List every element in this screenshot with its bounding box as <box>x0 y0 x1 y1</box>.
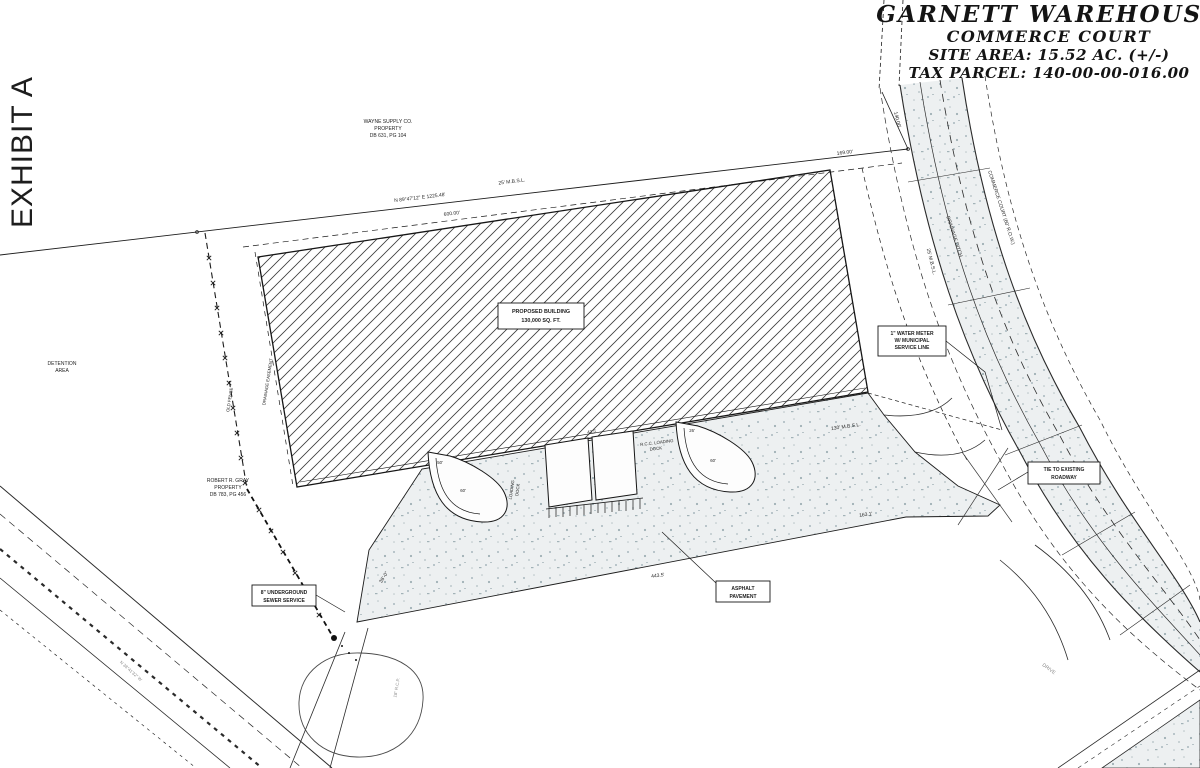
detention-area-label2: AREA <box>55 368 69 374</box>
easement-label: DRAINAGE EASEMENT <box>261 358 273 406</box>
radius-26: 26' <box>689 428 695 433</box>
project-subtitle: COMMERCE COURT <box>866 28 1200 47</box>
tie-existing-line1: TIE TO EXISTING <box>1044 467 1085 473</box>
site-plan-drawing: PROPOSED BUILDING 130,000 SQ. FT. 1" WAT… <box>0 0 1200 768</box>
project-title: GARNETT WAREHOUSE <box>866 1 1200 28</box>
site-area-text: SITE AREA: 15.52 AC. (+/-) <box>866 47 1200 65</box>
mbsl-top: 25' M.B.S.L. <box>498 177 526 186</box>
north-bearing: N 89°47'12" E 1225.48' <box>394 192 446 204</box>
mbsl-right: 25' M.B.S.L. <box>925 248 937 276</box>
sewer-callout: 8" UNDERGROUND SEWER SERVICE <box>252 585 345 612</box>
wayne-supply-label3: DB 631, PG 104 <box>370 133 407 139</box>
asphalt-line1: ASPHALT <box>731 586 754 592</box>
fence-line <box>205 233 247 489</box>
water-meter-line2: W/ MUNICIPAL <box>895 338 930 344</box>
tie-existing-line2: ROADWAY <box>1051 475 1077 481</box>
rcp-label: 18" R.C.P. <box>392 678 400 698</box>
southeast-corner-road <box>1058 670 1200 768</box>
sewer-line2: SEWER SERVICE <box>263 598 305 604</box>
radius-50: 50' <box>437 460 443 465</box>
detention-area-label: DETENTION <box>48 361 77 367</box>
exhibit-a-label: EXHIBIT A <box>6 16 50 228</box>
radius-60b: 60' <box>710 458 716 463</box>
water-meter-line3: SERVICE LINE <box>895 345 930 351</box>
gray-property-label: ROBERT R. GRAY <box>207 478 250 484</box>
sewer-line <box>247 489 357 661</box>
len-443: 443.5' <box>651 572 665 580</box>
building-label-line1: PROPOSED BUILDING <box>512 309 570 315</box>
sewer-line1: 8" UNDERGROUND <box>261 590 308 596</box>
radius-60a: 60' <box>460 488 466 493</box>
commerce-court-road <box>880 76 1200 690</box>
len-600: 600.00' <box>443 210 460 218</box>
title-block: GARNETT WAREHOUSE COMMERCE COURT SITE AR… <box>866 1 1200 82</box>
wayne-supply-label: WAYNE SUPPLY CO. <box>364 119 413 125</box>
site-plan-sheet: PROPOSED BUILDING 130,000 SQ. FT. 1" WAT… <box>0 0 1200 768</box>
pond-outline <box>299 653 423 757</box>
gray-property-label2: PROPERTY <box>214 485 242 491</box>
southwest-road <box>0 486 368 768</box>
building-label-line2: 130,000 SQ. FT. <box>521 318 561 324</box>
building-label-box: PROPOSED BUILDING 130,000 SQ. FT. <box>498 303 584 329</box>
asphalt-line2: PAVEMENT <box>729 594 756 600</box>
wayne-supply-label2: PROPERTY <box>374 126 402 132</box>
gray-property-label3: DB 783, PG 456 <box>210 492 247 498</box>
water-meter-line1: 1" WATER METER <box>890 331 934 337</box>
drive-label: DRIVE <box>1041 662 1057 676</box>
tax-parcel-text: TAX PARCEL: 140-00-00-016.00 <box>866 65 1200 83</box>
len-140: 140.00' <box>892 111 902 128</box>
